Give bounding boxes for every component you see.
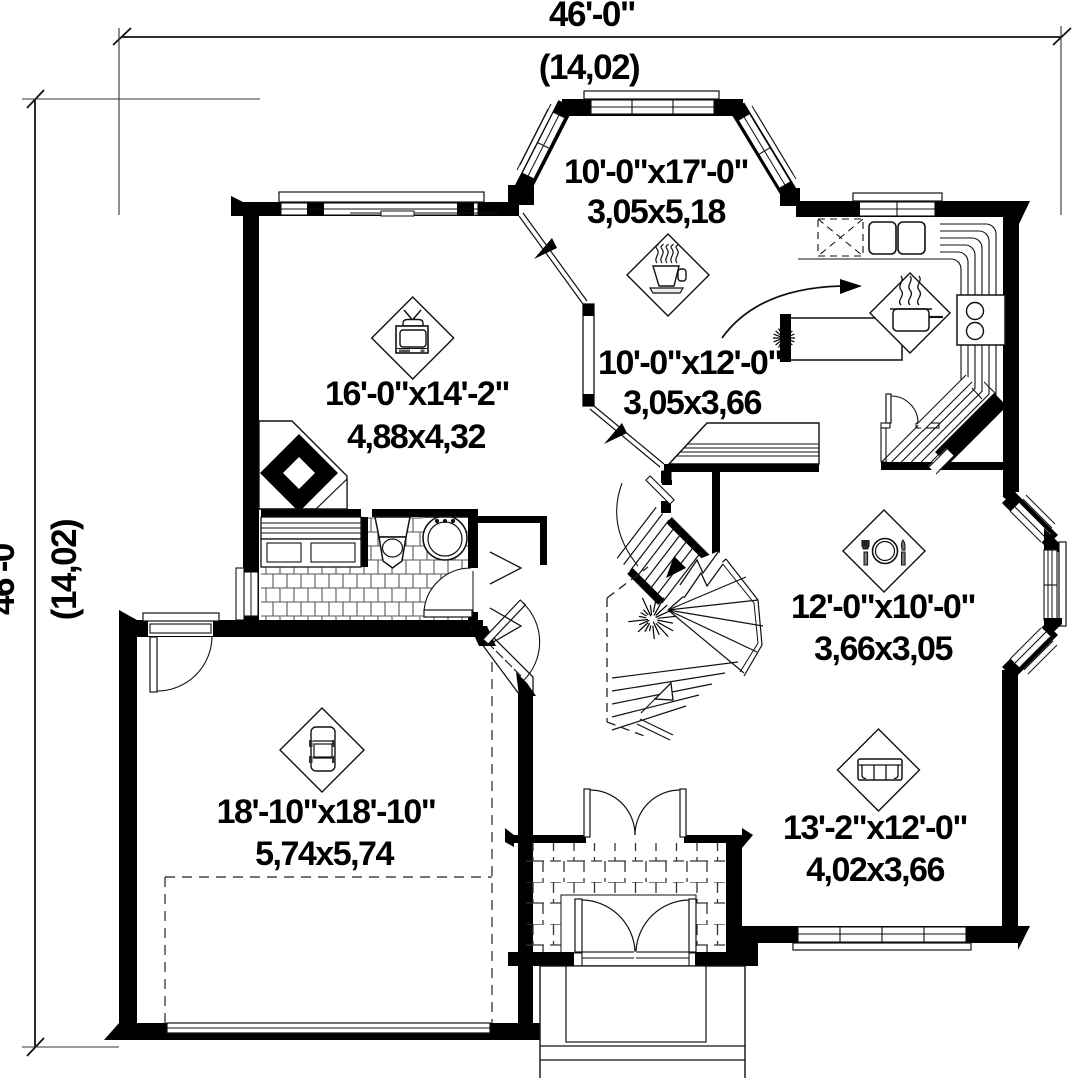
svg-text:3,05x5,18: 3,05x5,18 (587, 193, 725, 231)
svg-text:13'-2"x12'-0": 13'-2"x12'-0" (783, 809, 967, 847)
svg-text:(14,02): (14,02) (45, 520, 84, 620)
svg-text:12'-0"x10'-0": 12'-0"x10'-0" (791, 588, 975, 626)
svg-text:46'-0": 46'-0" (549, 0, 635, 34)
svg-text:16'-0"x14'-2": 16'-0"x14'-2" (325, 375, 509, 413)
svg-text:4,02x3,66: 4,02x3,66 (806, 851, 944, 889)
svg-text:3,05x3,66: 3,05x3,66 (623, 384, 761, 422)
svg-text:10'-0"x12'-0": 10'-0"x12'-0" (598, 344, 782, 382)
svg-text:5,74x5,74: 5,74x5,74 (255, 835, 394, 873)
svg-text:10'-0"x17'-0": 10'-0"x17'-0" (564, 153, 748, 191)
svg-text:3,66x3,05: 3,66x3,05 (814, 630, 952, 668)
svg-text:18'-10"x18'-10": 18'-10"x18'-10" (217, 793, 436, 831)
svg-text:4,88x4,32: 4,88x4,32 (347, 418, 485, 456)
svg-text:46'-0": 46'-0" (0, 529, 22, 615)
svg-text:(14,02): (14,02) (539, 48, 639, 87)
